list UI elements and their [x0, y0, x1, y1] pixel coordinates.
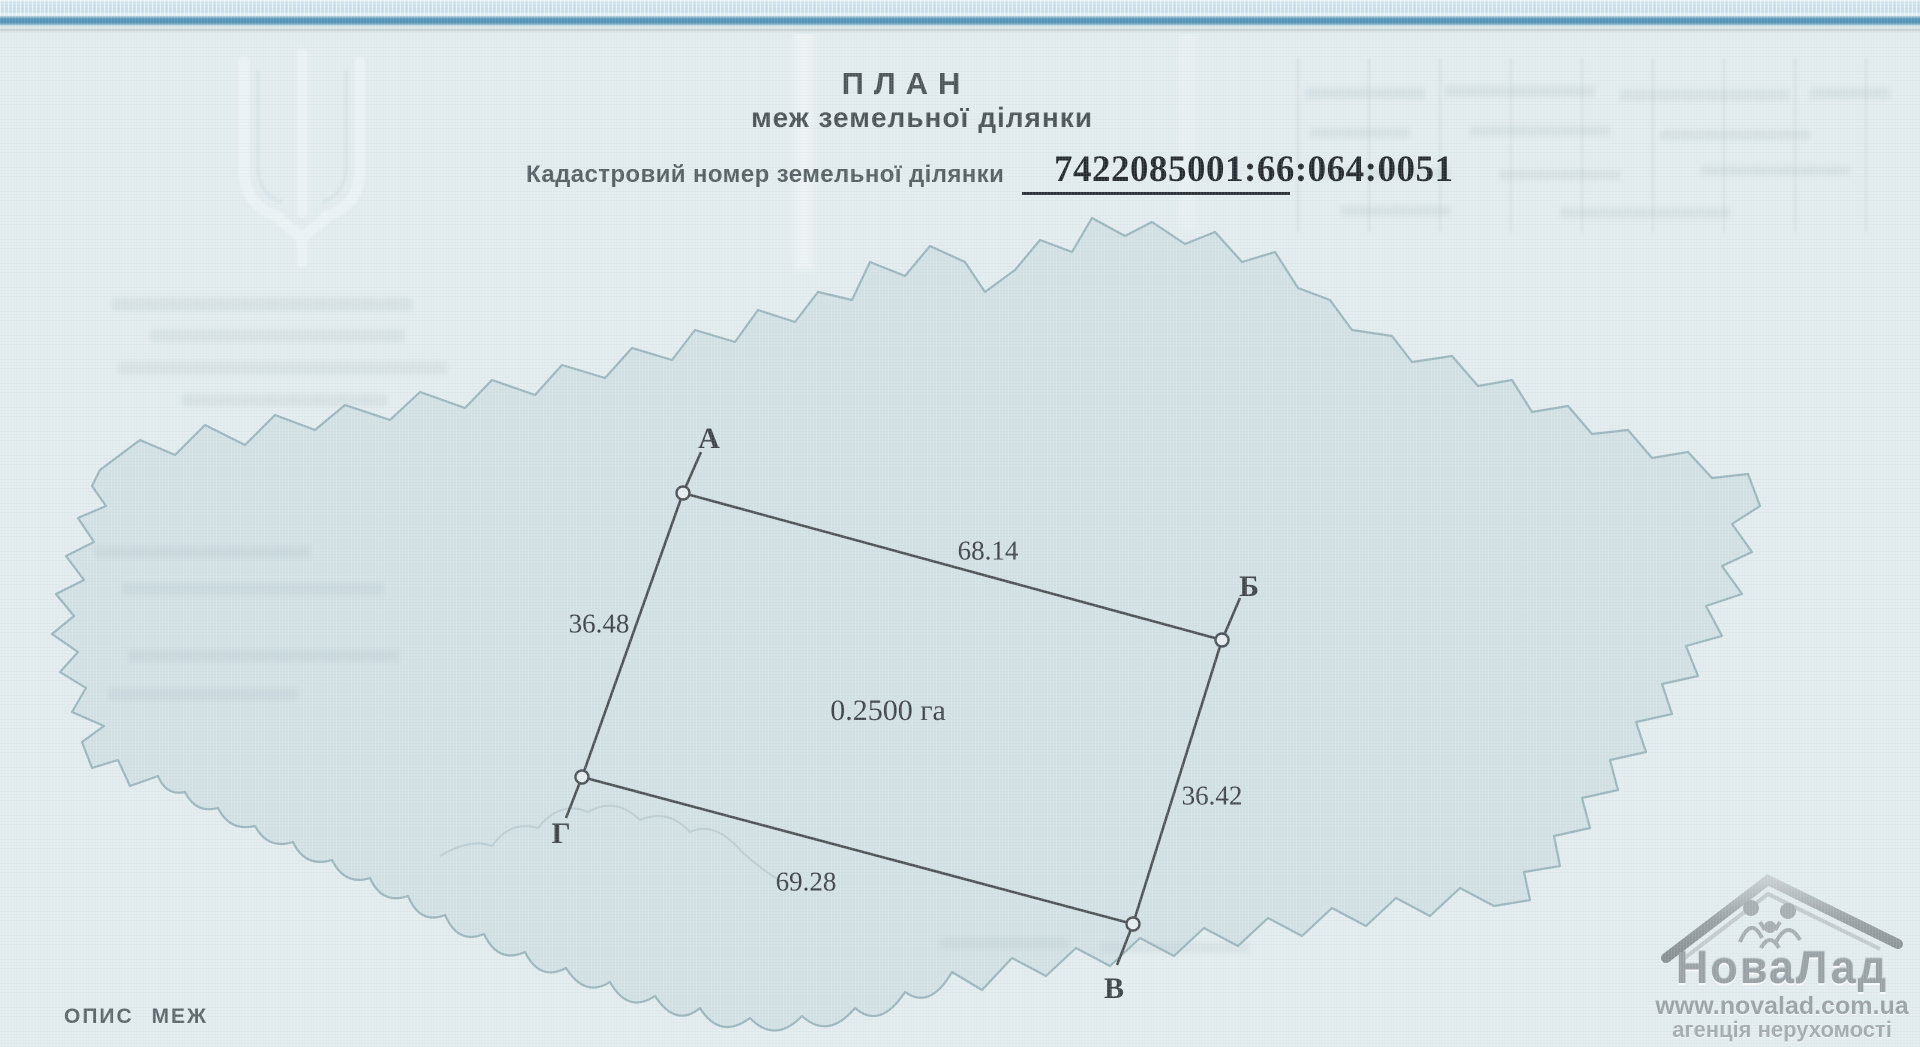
side-a-b: [683, 493, 1222, 640]
vertex-marker-b: [1216, 634, 1229, 647]
vertex-label-v: В: [1104, 972, 1124, 1006]
page-title: ПЛАН: [842, 66, 971, 102]
boundaries-description-heading: ОПИС МЕЖ: [64, 1005, 208, 1029]
vertex-label-g: Г: [551, 817, 570, 851]
side-length-a-b: 68.14: [958, 536, 1019, 567]
vertex-label-b: Б: [1239, 570, 1259, 604]
cadastral-number-value: 7422085001:66:064:0051: [1054, 148, 1453, 191]
agency-watermark: НоваЛад www.novalad.com.ua агенція нерух…: [1648, 872, 1916, 1032]
family-figures: [1740, 900, 1800, 948]
vertex-marker-a: [677, 487, 690, 500]
side-length-v-g: 69.28: [776, 867, 837, 898]
agency-brand: НоваЛад: [1648, 942, 1916, 994]
plot-area-label: 0.2500 га: [830, 694, 946, 728]
cadastral-plan-document: { "header": { "title": "ПЛАН", "subtitle…: [0, 0, 1920, 1047]
vertex-marker-v: [1127, 918, 1140, 931]
cadastral-number-label: Кадастровий номер земельної ділянки: [526, 161, 1004, 189]
side-v-g: [582, 777, 1133, 924]
agency-tagline: агенція нерухомості: [1648, 1017, 1916, 1043]
page-subtitle: меж земельної ділянки: [751, 102, 1093, 134]
side-length-g-a: 36.48: [569, 609, 630, 640]
side-length-b-v: 36.42: [1182, 781, 1243, 812]
vertex-label-a: А: [698, 422, 720, 456]
cadastral-number-underline: [1022, 192, 1290, 195]
plot-boundary-diagram: [0, 0, 1920, 1047]
vertex-marker-g: [576, 771, 589, 784]
